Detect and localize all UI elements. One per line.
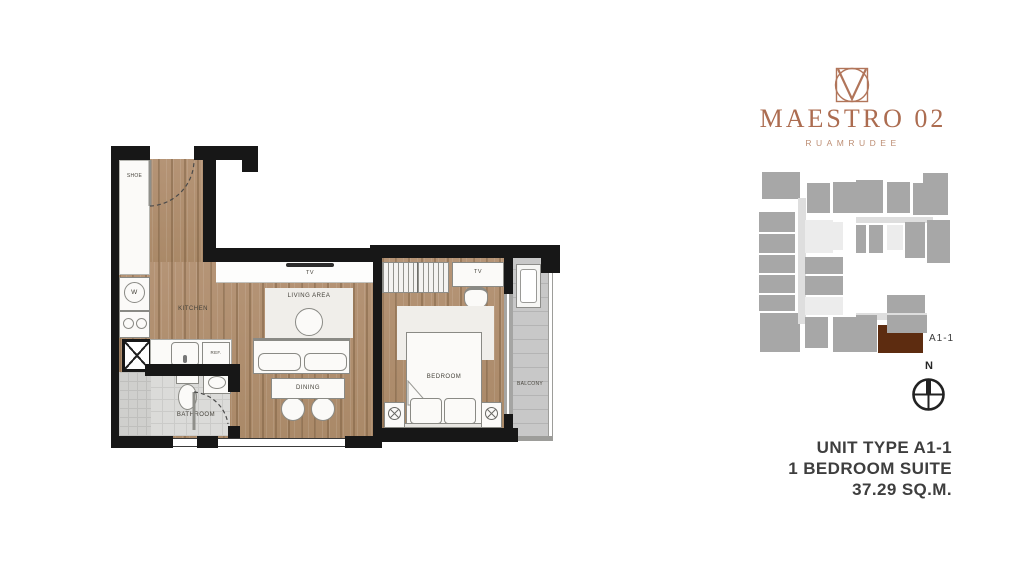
keyplan-block: [762, 172, 800, 199]
compass-icon: [910, 376, 947, 413]
keyplan-block: [887, 182, 910, 213]
keyplan-block: [887, 225, 903, 250]
keyplan-block: [856, 225, 866, 253]
keyplan-block: [759, 234, 795, 253]
keyplan-block: [923, 173, 948, 184]
keyplan-block: [807, 183, 830, 213]
unit-bedroom-text: 1 BEDROOM SUITE: [702, 458, 952, 479]
keyplan-block: [887, 295, 925, 315]
keyplan-block: [833, 222, 843, 250]
compass-north-label: N: [920, 360, 938, 372]
keyplan-unit-highlight: [887, 333, 923, 353]
brochure-page: TV BALCONY SHOE W REF. KITCHEN: [0, 0, 1024, 586]
keyplan-block: [805, 317, 828, 348]
keyplan-block: [760, 313, 800, 352]
keyplan-unit-label: A1-1: [929, 333, 954, 344]
keyplan-block: [913, 183, 948, 215]
unit-area-text: 37.29 SQ.M.: [702, 479, 952, 500]
keyplan-block: [887, 315, 927, 333]
keyplan-block: [805, 257, 843, 274]
keyplan-block: [805, 220, 833, 253]
unit-type-text: UNIT TYPE A1-1: [702, 437, 952, 458]
keyplan-block: [856, 315, 877, 352]
keyplan-block: [759, 275, 795, 293]
keyplan-block: [759, 212, 795, 232]
keyplan-block: [759, 255, 795, 273]
keyplan-block: [805, 276, 843, 295]
keyplan-block: [927, 220, 950, 263]
unit-info: UNIT TYPE A1-1 1 BEDROOM SUITE 37.29 SQ.…: [702, 437, 952, 500]
keyplan-block: [759, 295, 795, 311]
keyplan-unit-highlight: [878, 325, 887, 353]
keyplan-block: [905, 222, 925, 258]
keyplan-block: [805, 297, 843, 315]
keyplan-block: [869, 225, 883, 253]
keyplan-block: [856, 180, 883, 213]
